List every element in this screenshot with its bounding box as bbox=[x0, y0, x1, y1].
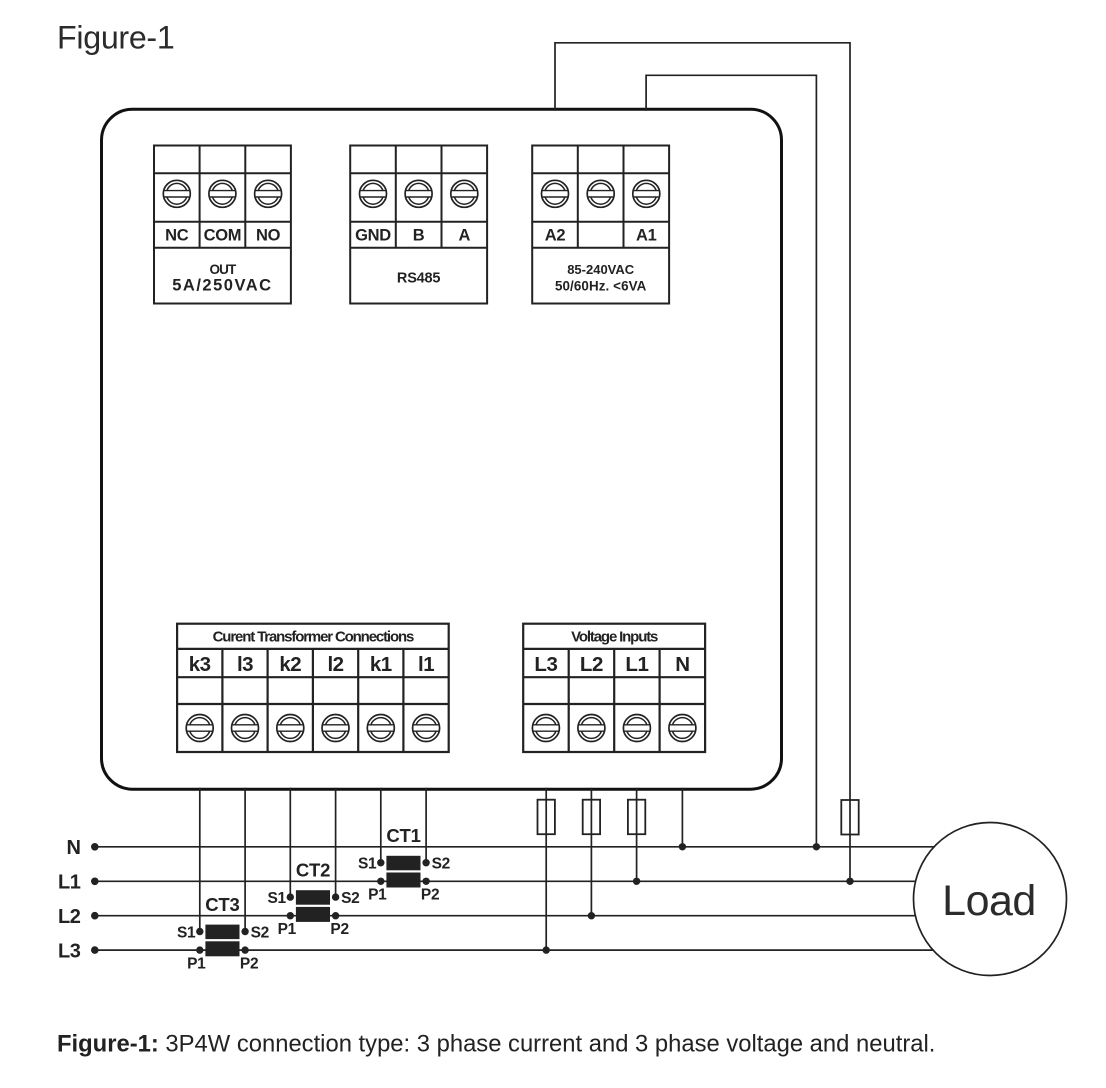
svg-text:N: N bbox=[66, 837, 80, 859]
svg-text:NC: NC bbox=[165, 227, 189, 245]
svg-text:P1: P1 bbox=[368, 887, 387, 904]
svg-text:Figure-1: Figure-1 bbox=[57, 20, 174, 56]
svg-text:RS485: RS485 bbox=[397, 270, 440, 286]
svg-text:k2: k2 bbox=[279, 653, 301, 676]
svg-text:A: A bbox=[458, 227, 470, 245]
svg-text:B: B bbox=[413, 227, 425, 245]
svg-text:A2: A2 bbox=[545, 227, 566, 245]
svg-text:85-240VAC: 85-240VAC bbox=[567, 262, 635, 277]
svg-text:OUT: OUT bbox=[210, 262, 237, 277]
svg-text:CT1: CT1 bbox=[386, 825, 420, 846]
svg-text:N: N bbox=[675, 653, 689, 676]
svg-text:Load: Load bbox=[942, 877, 1036, 925]
svg-text:A1: A1 bbox=[636, 227, 657, 245]
svg-text:S2: S2 bbox=[341, 890, 359, 907]
svg-text:l1: l1 bbox=[418, 653, 434, 676]
svg-text:l3: l3 bbox=[237, 653, 253, 676]
svg-text:GND: GND bbox=[355, 227, 391, 245]
svg-text:CT2: CT2 bbox=[296, 859, 330, 880]
svg-text:P2: P2 bbox=[330, 921, 348, 938]
svg-text:S1: S1 bbox=[177, 924, 196, 941]
svg-text:l2: l2 bbox=[327, 653, 343, 676]
svg-text:Figure-1: 3P4W connection type: Figure-1: 3P4W connection type: 3 phase … bbox=[57, 1031, 935, 1058]
svg-text:L3: L3 bbox=[534, 653, 557, 676]
svg-text:L2: L2 bbox=[58, 906, 81, 928]
svg-text:P2: P2 bbox=[240, 955, 258, 972]
svg-text:k1: k1 bbox=[370, 653, 392, 676]
svg-text:NO: NO bbox=[256, 227, 281, 245]
svg-text:S1: S1 bbox=[267, 890, 286, 907]
svg-text:Voltage Inputs: Voltage Inputs bbox=[571, 628, 658, 645]
svg-text:k3: k3 bbox=[189, 653, 211, 676]
svg-text:P2: P2 bbox=[421, 887, 439, 904]
svg-text:L1: L1 bbox=[58, 872, 81, 894]
svg-text:CT3: CT3 bbox=[205, 894, 239, 915]
svg-text:S2: S2 bbox=[432, 856, 450, 873]
svg-text:S2: S2 bbox=[251, 924, 269, 941]
svg-text:L2: L2 bbox=[580, 653, 603, 676]
svg-text:Curent Transformer Connections: Curent Transformer Connections bbox=[213, 628, 414, 645]
svg-text:5A/250VAC: 5A/250VAC bbox=[172, 276, 272, 294]
svg-text:L1: L1 bbox=[625, 653, 648, 676]
svg-text:S1: S1 bbox=[358, 856, 377, 873]
svg-text:50/60Hz. <6VA: 50/60Hz. <6VA bbox=[555, 278, 647, 293]
svg-text:P1: P1 bbox=[187, 955, 206, 972]
svg-text:COM: COM bbox=[204, 227, 242, 245]
svg-text:L3: L3 bbox=[58, 941, 81, 963]
svg-text:P1: P1 bbox=[278, 921, 297, 938]
